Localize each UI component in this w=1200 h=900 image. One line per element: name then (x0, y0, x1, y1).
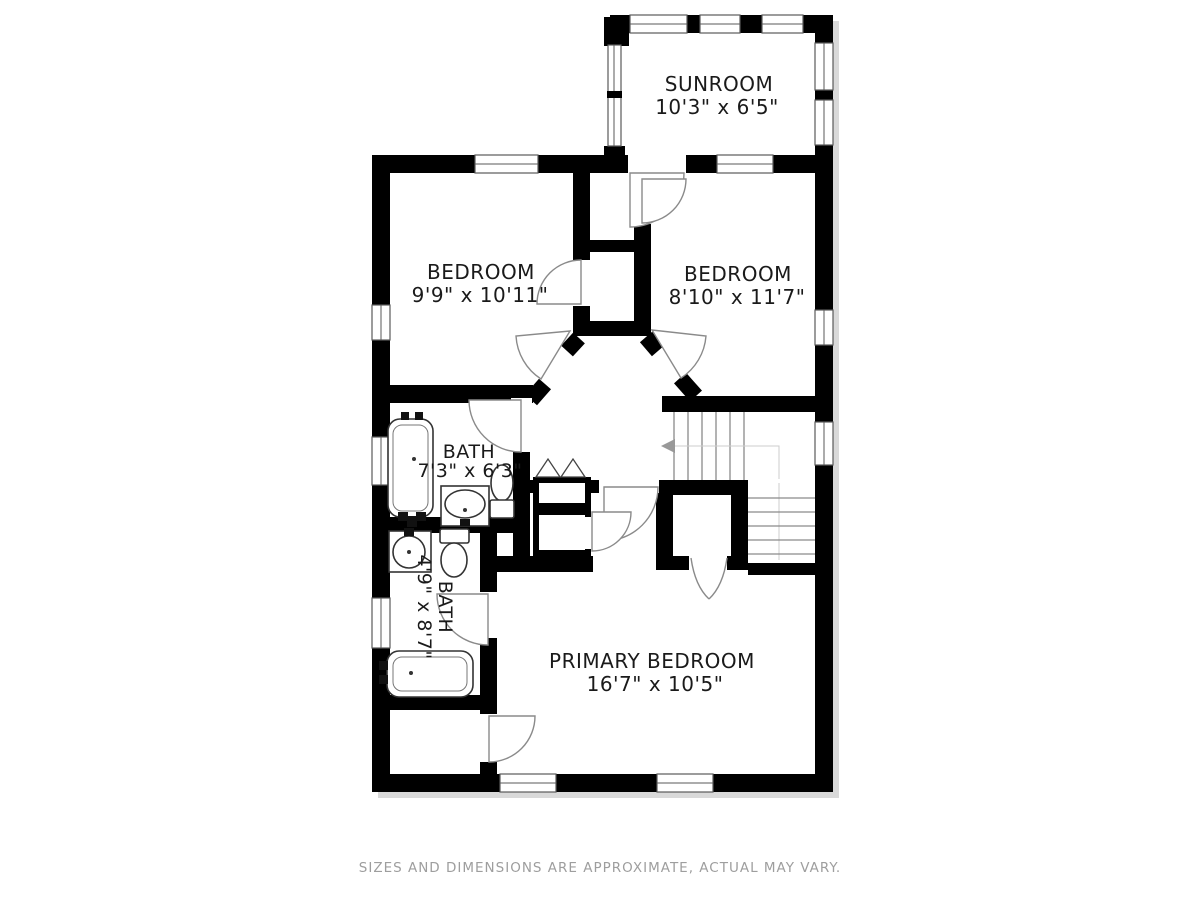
door-swing-primary-closet (489, 716, 535, 762)
room-dims-sunroom: 10'3" x 6'5" (655, 95, 779, 119)
stair-treads-lower (748, 498, 815, 554)
room-label-bedroom-right: BEDROOM (684, 262, 792, 286)
sink-upper-icon (441, 486, 489, 526)
door-swing-bedroom-left (516, 331, 570, 379)
window (815, 100, 833, 145)
door-swing-closet-right (642, 179, 686, 223)
window (500, 774, 556, 792)
room-label-bath-lower: BATH (434, 581, 456, 633)
window (717, 155, 773, 173)
window (657, 774, 713, 792)
room-label-primary-bedroom: PRIMARY BEDROOM (549, 649, 755, 673)
toilet-lower-icon (440, 529, 469, 577)
hall-closet (533, 509, 592, 556)
door-swing-bedroom-right (652, 330, 706, 378)
room-dims-bath-lower: 4'9" x 8'7" (413, 554, 435, 659)
window (475, 155, 538, 173)
window (607, 45, 622, 146)
room-dims-bedroom-left: 9'9" x 10'11" (412, 283, 549, 307)
linen-closet (533, 459, 591, 509)
stairs-direction-arrow (661, 439, 675, 453)
window (762, 15, 803, 33)
window (630, 15, 687, 33)
room-label-bedroom-left: BEDROOM (427, 260, 535, 284)
window (815, 310, 833, 345)
room-dims-bedroom-right: 8'10" x 11'7" (669, 285, 806, 309)
window (815, 43, 833, 90)
window (372, 598, 390, 648)
window (372, 305, 390, 340)
room-label-sunroom: SUNROOM (665, 72, 773, 96)
floor-plan-page: SUNROOM 10'3" x 6'5" BEDROOM 9'9" x 10'1… (0, 0, 1200, 900)
window (700, 15, 740, 33)
window (815, 422, 833, 465)
room-dims-bath-upper: 7'3" x 6'3" (417, 460, 522, 482)
door-swing-hall-closet (592, 512, 631, 551)
floor-plan: SUNROOM 10'3" x 6'5" BEDROOM 9'9" x 10'1… (0, 0, 1200, 900)
room-dims-primary-bedroom: 16'7" x 10'5" (587, 672, 724, 696)
disclaimer-text: SIZES AND DIMENSIONS ARE APPROXIMATE, AC… (359, 860, 841, 876)
